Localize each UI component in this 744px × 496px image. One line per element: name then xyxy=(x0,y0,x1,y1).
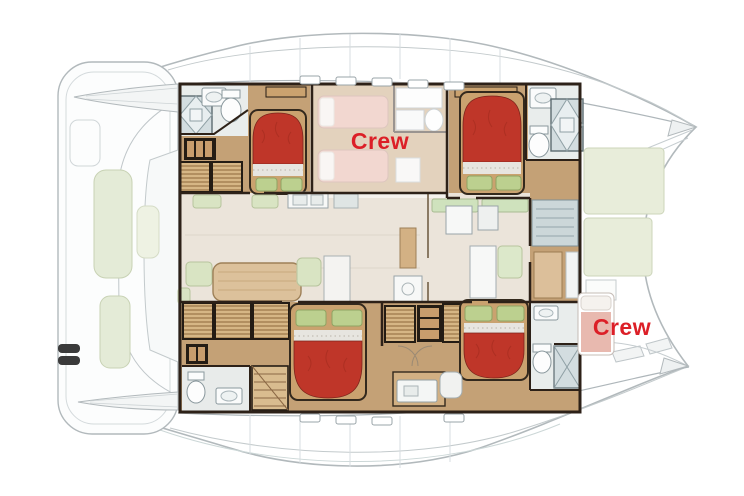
galley-unit xyxy=(334,194,358,208)
cabinet xyxy=(324,256,350,302)
wardrobe xyxy=(183,303,289,339)
double-bed xyxy=(460,92,524,194)
shower xyxy=(551,99,583,151)
sofa-cushion xyxy=(186,262,212,286)
sun-pad xyxy=(100,296,130,368)
seat-cushion xyxy=(252,195,278,208)
wood-door xyxy=(534,252,562,298)
salon-table xyxy=(213,263,301,301)
sun-pad xyxy=(137,206,159,258)
wardrobe xyxy=(180,162,242,192)
aft-deck-cushion xyxy=(584,148,664,214)
aft-deck-cushion xyxy=(584,218,652,276)
shelf-unit xyxy=(184,138,216,160)
door-panel xyxy=(470,246,496,298)
wood-panel xyxy=(400,228,416,268)
double-bed xyxy=(250,110,306,194)
shower xyxy=(554,346,580,388)
shelf-unit xyxy=(417,305,442,342)
sink xyxy=(216,388,242,404)
double-bed xyxy=(290,304,366,400)
deck-plan-svg: Crew Crew xyxy=(0,0,744,496)
toilet xyxy=(533,344,551,373)
steps-ladder xyxy=(252,366,288,410)
bench-cushion xyxy=(297,258,321,286)
crew-label-aft: Crew xyxy=(593,314,651,340)
seat-cushion xyxy=(498,246,522,278)
toilet xyxy=(187,372,205,403)
double-bed xyxy=(460,300,528,380)
shelf-unit xyxy=(186,344,208,364)
sun-pad xyxy=(94,170,132,278)
toilet xyxy=(529,126,549,157)
galley-sink-unit xyxy=(288,192,328,208)
seat-cushion xyxy=(193,195,221,208)
headboard-shelf xyxy=(266,87,306,97)
deck-plan-page: Crew Crew xyxy=(0,0,744,496)
foredeck-lounge xyxy=(58,62,178,434)
sink xyxy=(534,306,558,320)
crew-label-forward: Crew xyxy=(351,128,409,154)
